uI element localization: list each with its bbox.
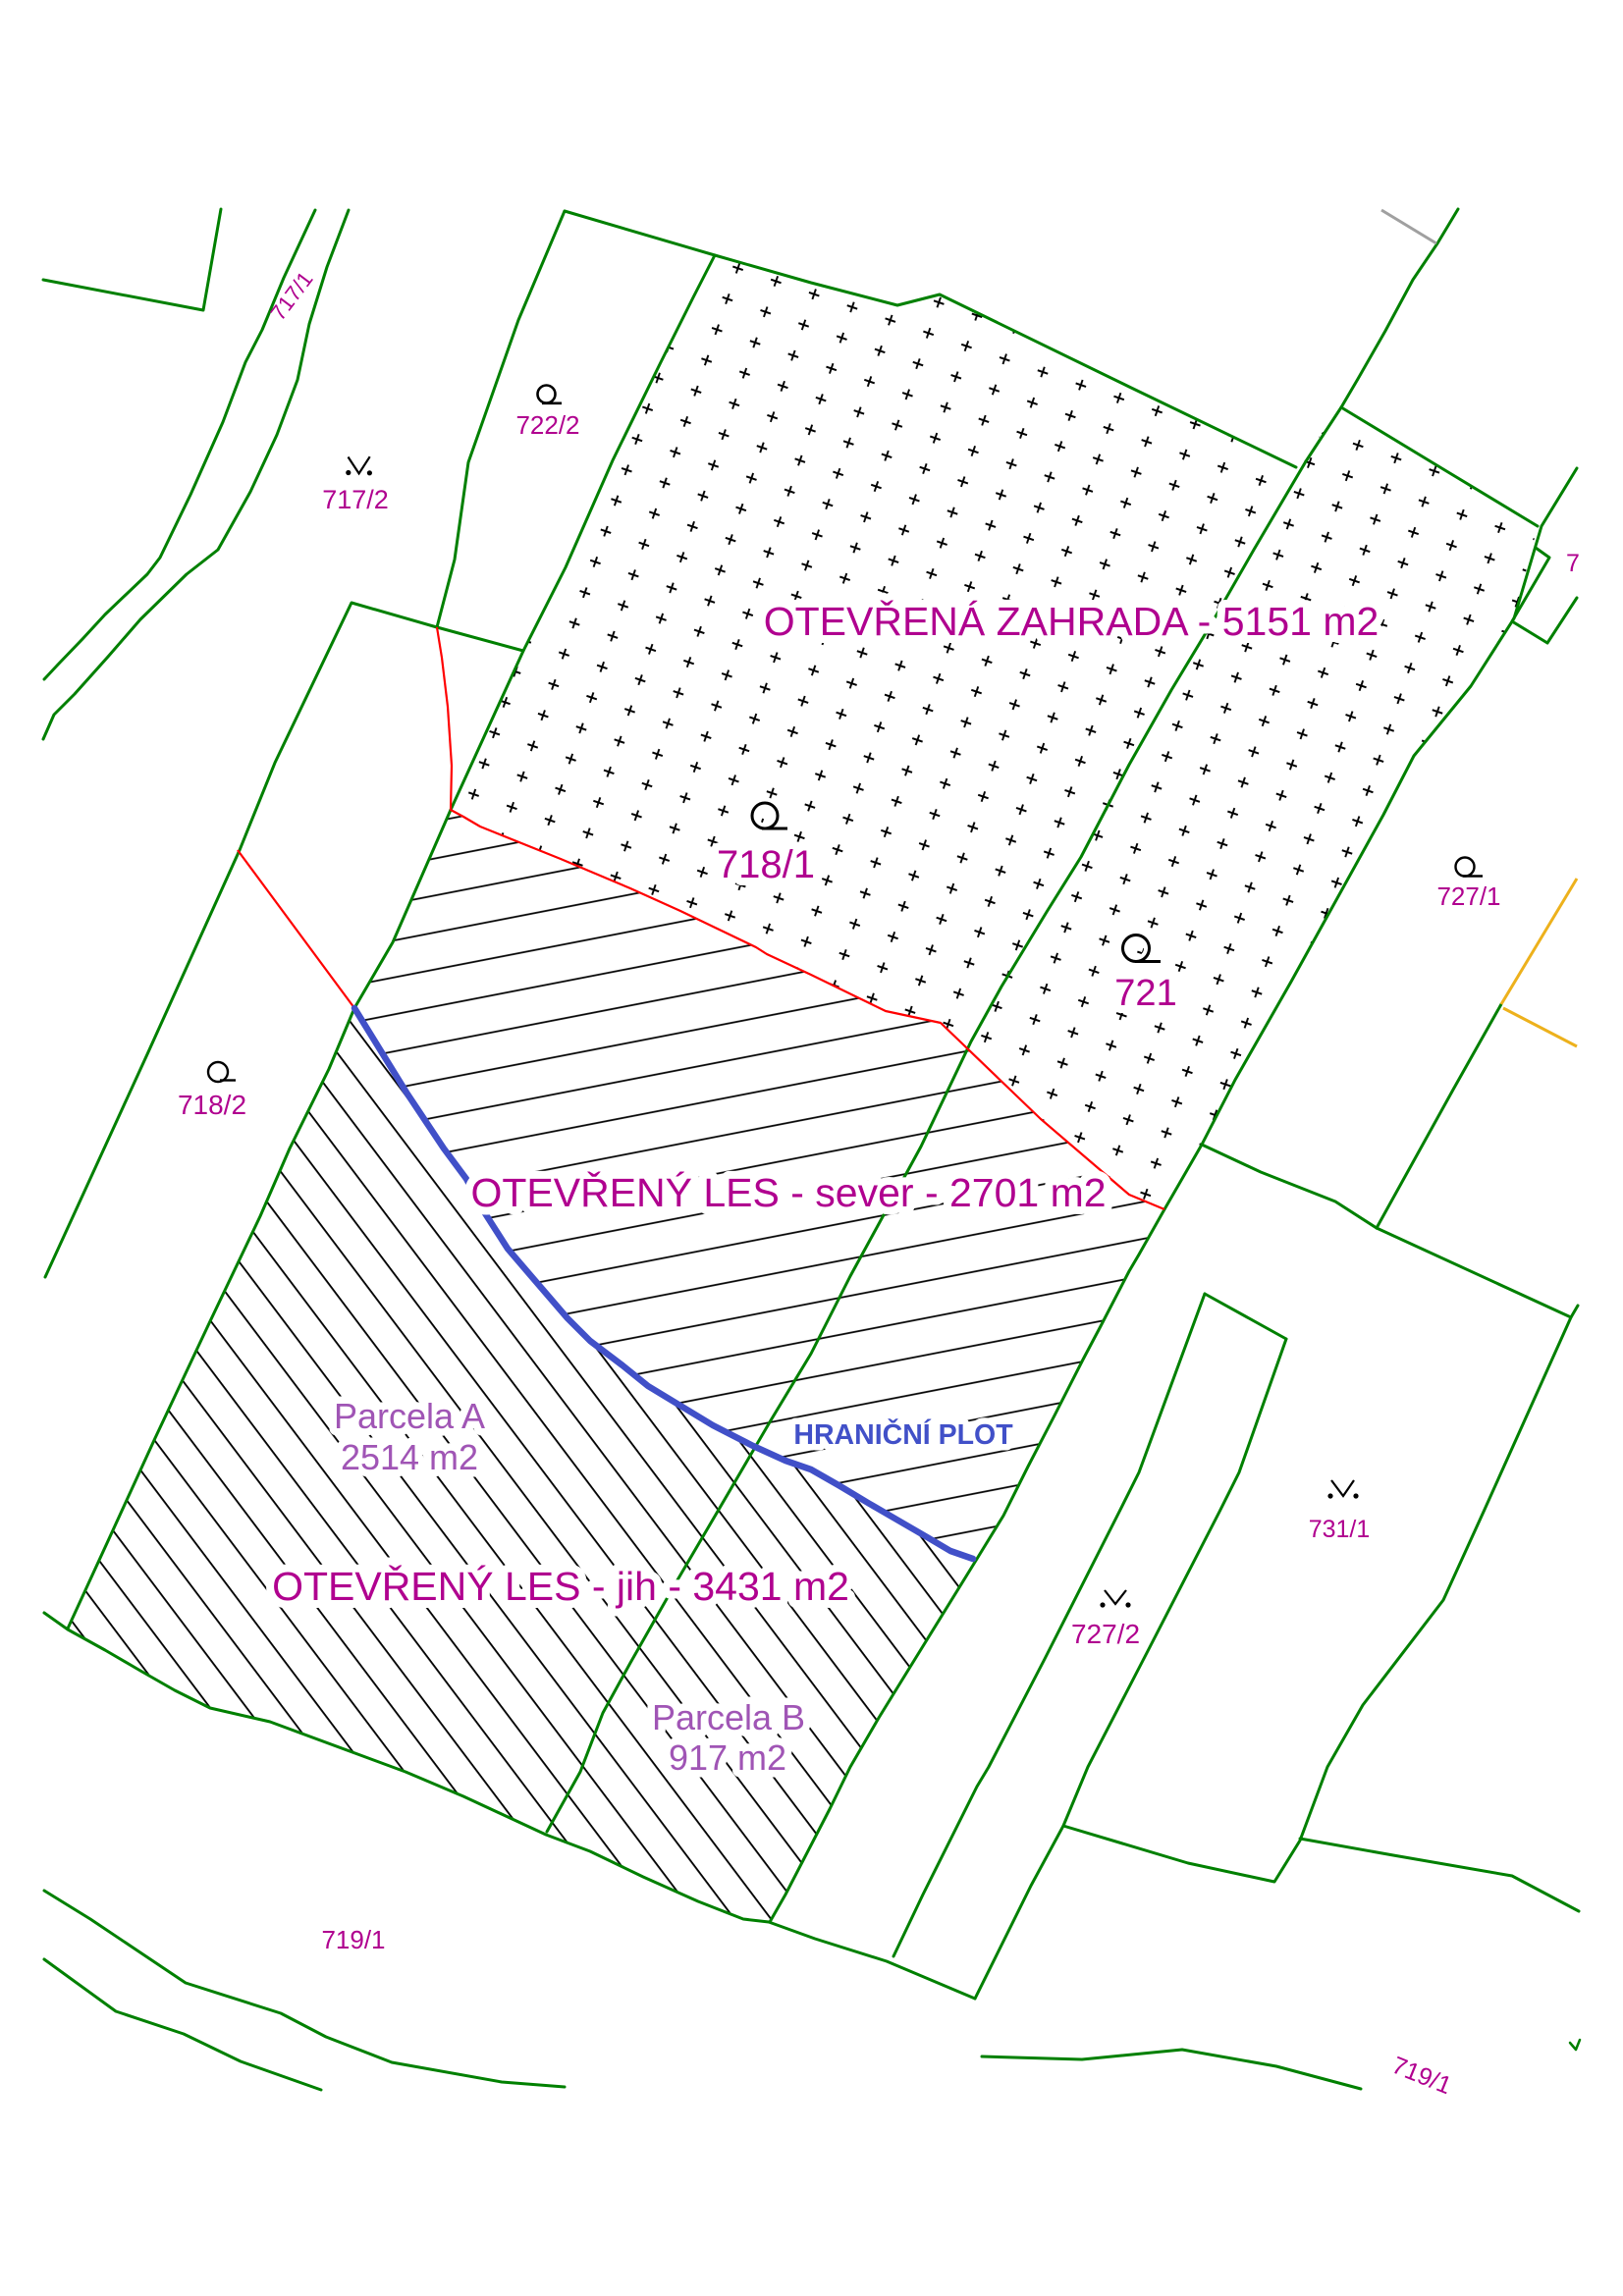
svg-text:717/1: 717/1	[265, 267, 317, 325]
svg-text:722/2: 722/2	[515, 410, 579, 440]
svg-text:718/1: 718/1	[717, 843, 815, 886]
svg-text:7: 7	[1566, 550, 1580, 577]
svg-text:Parcela B: Parcela B	[652, 1697, 805, 1737]
svg-text:OTEVŘENÝ LES - sever - 2701 m2: OTEVŘENÝ LES - sever - 2701 m2	[470, 1170, 1106, 1215]
svg-text:2514 m2: 2514 m2	[341, 1437, 478, 1477]
svg-text:719/1: 719/1	[1388, 2052, 1455, 2100]
svg-text:718/2: 718/2	[178, 1090, 246, 1120]
svg-text:721: 721	[1114, 973, 1176, 1014]
svg-text:OTEVŘENÝ LES - jih - 3431 m2: OTEVŘENÝ LES - jih - 3431 m2	[272, 1564, 849, 1609]
svg-text:OTEVŘENÁ ZAHRADA - 5151 m2: OTEVŘENÁ ZAHRADA - 5151 m2	[764, 599, 1380, 644]
svg-text:719/1: 719/1	[321, 1925, 385, 1954]
svg-text:727/1: 727/1	[1436, 881, 1500, 911]
svg-text:917 m2: 917 m2	[669, 1737, 786, 1778]
svg-text:HRANIČNÍ PLOT: HRANIČNÍ PLOT	[793, 1418, 1013, 1451]
svg-text:727/2: 727/2	[1071, 1619, 1140, 1649]
svg-text:731/1: 731/1	[1309, 1516, 1371, 1543]
svg-text:Parcela A: Parcela A	[334, 1396, 485, 1436]
svg-text:717/2: 717/2	[322, 485, 389, 514]
